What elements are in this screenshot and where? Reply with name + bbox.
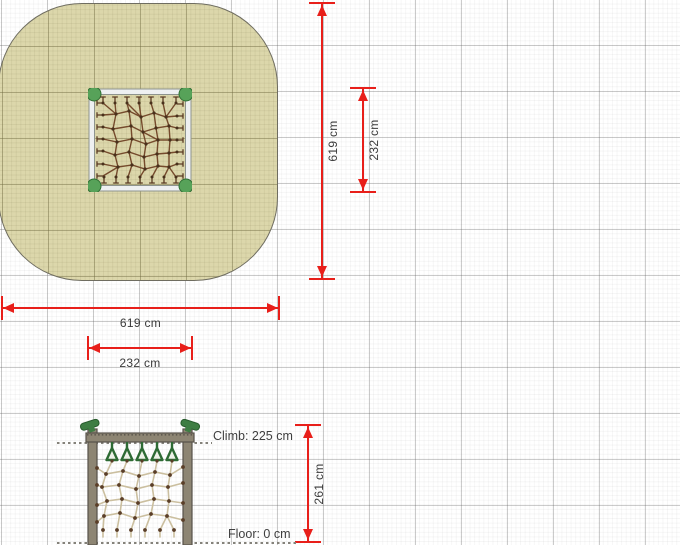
dim-plan-net-height-label: 232 cm — [367, 119, 381, 160]
drawing-canvas: 619 cm 232 cm 619 cm 232 cm 261 cm Climb… — [0, 0, 680, 545]
dim-elevation-height-label: 261 cm — [312, 463, 326, 504]
plan-net-ropes — [103, 103, 177, 177]
post-left — [88, 429, 97, 545]
plan-net-structure[interactable] — [88, 88, 192, 192]
triangle-ring — [137, 448, 148, 460]
post-cap-left — [80, 419, 101, 435]
dim-plan-zone-height-label: 619 cm — [326, 120, 340, 161]
climbing-rings — [107, 442, 178, 460]
dim-plan-net-width-label: 232 cm — [119, 356, 160, 370]
elevation-structure — [76, 417, 200, 545]
elevation-net-ropes — [97, 461, 183, 537]
post-right — [183, 429, 192, 545]
dim-plan-zone-width-label: 619 cm — [120, 316, 161, 330]
triangle-ring — [167, 448, 178, 460]
triangle-ring — [122, 448, 133, 460]
climb-height-label: Climb: 225 cm — [213, 429, 293, 443]
floor-label: Floor: 0 cm — [228, 527, 291, 541]
post-cap-right — [179, 419, 200, 435]
triangle-ring — [107, 448, 118, 460]
triangle-ring — [152, 448, 163, 460]
